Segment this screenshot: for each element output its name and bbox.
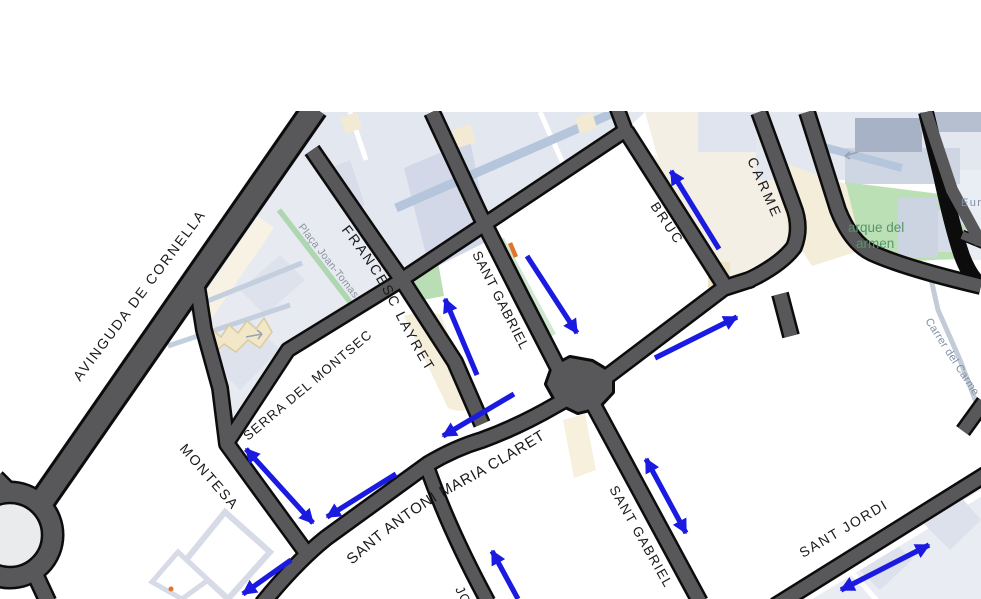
- svg-text:armen: armen: [856, 236, 894, 251]
- svg-text:arque del: arque del: [848, 220, 904, 235]
- svg-text:Eur: Eur: [961, 197, 981, 209]
